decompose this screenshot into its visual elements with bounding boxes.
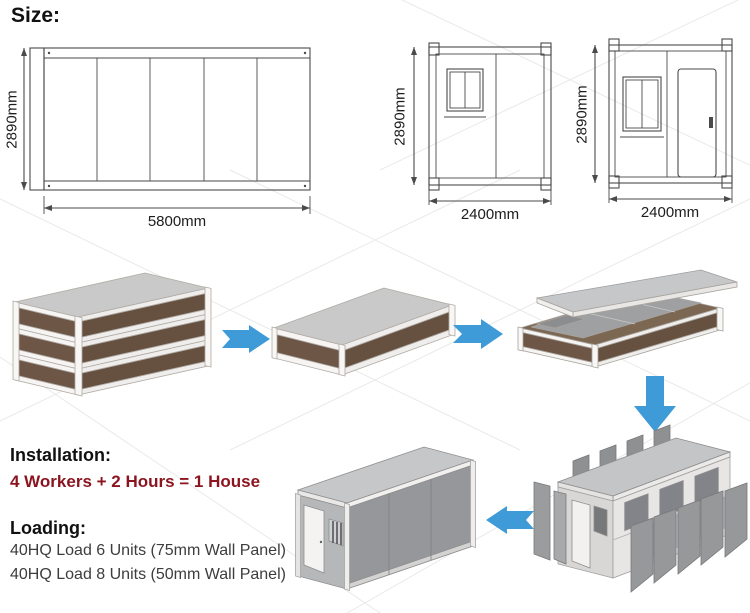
dim-width-label: 5800mm (127, 213, 227, 230)
loading-title: Loading: (10, 517, 310, 540)
infographic-canvas: Size: 2890mm 5800mm (0, 0, 750, 613)
finished-container-house-image (283, 443, 488, 613)
stacked-flat-packs-image (5, 250, 220, 405)
drawing-end-elevation-door: 2890mm 2400mm (582, 35, 750, 240)
drawing-end-elevation-window: 2890mm 2400mm (392, 35, 564, 240)
dim-width-label: 2400mm (440, 206, 540, 223)
dim-height-label: 2890mm (4, 90, 21, 150)
loading-line-1: 40HQ Load 6 Units (75mm Wall Panel) (10, 539, 310, 563)
arrow-left-icon (478, 506, 534, 534)
dim-height-label: 2890mm (574, 85, 591, 145)
info-text-block: Installation: 4 Workers + 2 Hours = 1 Ho… (10, 444, 310, 587)
panel-assembly-house-image (528, 420, 750, 610)
dim-width-label: 2400mm (620, 204, 720, 221)
arrow-right-icon-2 (453, 319, 503, 349)
loading-line-2: 40HQ Load 8 Units (50mm Wall Panel) (10, 563, 310, 587)
single-flat-pack-image (256, 272, 471, 387)
dim-height-label: 2890mm (392, 87, 409, 147)
size-section-title: Size: (11, 4, 60, 28)
installation-title: Installation: (10, 444, 310, 467)
unfolding-flat-pack-image (505, 250, 750, 385)
installation-formula: 4 Workers + 2 Hours = 1 House (10, 471, 310, 493)
drawing-side-elevation: 2890mm 5800mm (8, 38, 328, 238)
side-elevation-linework (8, 38, 328, 238)
